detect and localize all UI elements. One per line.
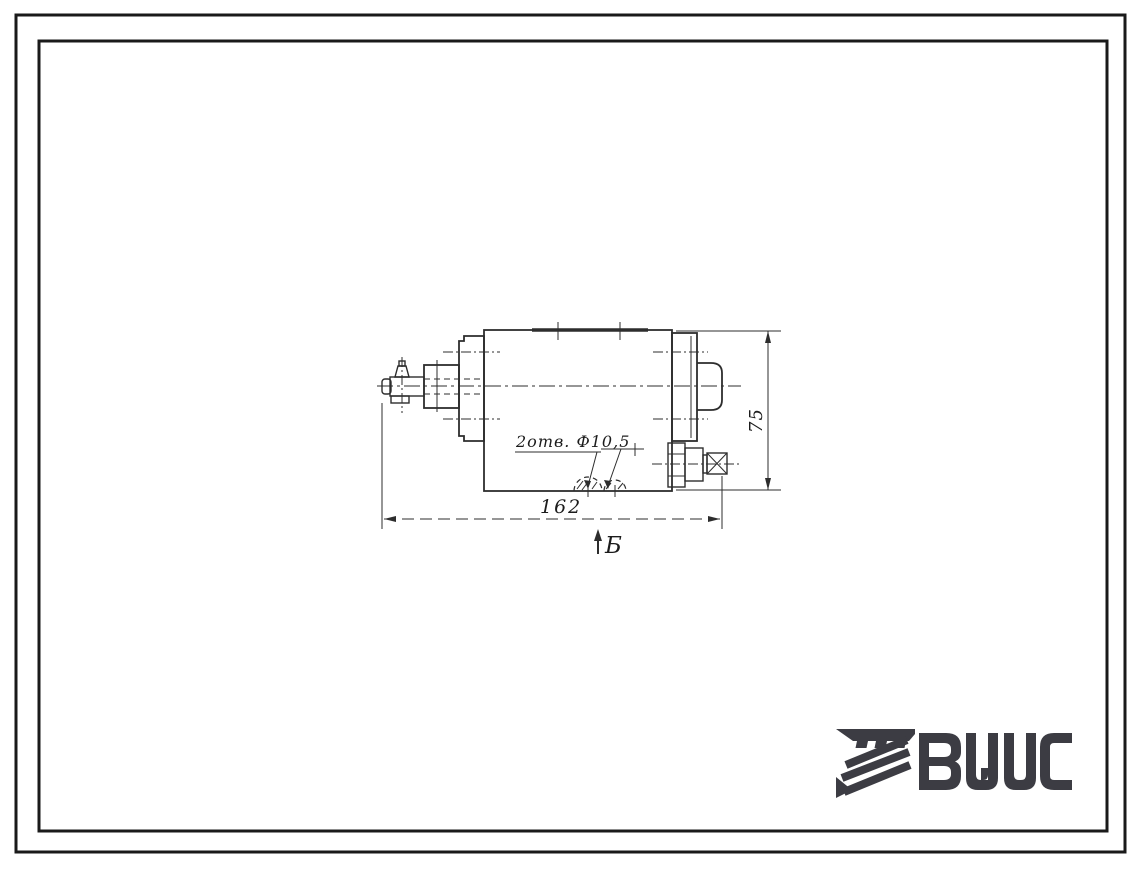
length-dim-text: 162: [540, 496, 582, 518]
logo-letter-3: [1004, 733, 1036, 790]
hatch-line: [577, 481, 583, 489]
vcis-logo-mark: [836, 729, 915, 798]
leader-arrow-1: [584, 480, 591, 489]
logo-letter-2: [966, 733, 998, 790]
hatch-line: [618, 483, 623, 489]
logo-letter-4: [1040, 733, 1072, 790]
section-letter-text: Б: [604, 533, 622, 559]
fitting-bottom-step: [391, 396, 409, 403]
section-marker: [594, 529, 602, 554]
dim-arrow-bottom: [765, 478, 771, 490]
annotation-texts: 2отв. Ф10,5 162 75 Б: [515, 408, 767, 559]
holes-note-text: 2отв. Ф10,5: [515, 432, 630, 451]
bottom-holes: [574, 477, 626, 497]
dim-arrow-top: [765, 331, 771, 343]
drawing-sheet: 2отв. Ф10,5 162 75 Б ВЦИС: [0, 0, 1139, 869]
port-hex: [668, 443, 685, 487]
section-arrow-head: [594, 529, 602, 541]
logo-letter-1: [919, 733, 961, 790]
body-outline: [484, 330, 672, 491]
height-dim-text: 75: [746, 408, 767, 433]
sheet-canvas: 2отв. Ф10,5 162 75 Б ВЦИС: [0, 0, 1139, 869]
dim-arrow-left: [384, 516, 396, 522]
right-flange: [672, 333, 697, 441]
dim-arrow-right: [708, 516, 720, 522]
vcis-logo: ВЦИС: [836, 729, 1072, 798]
mark-tooth-1: [856, 741, 869, 748]
hatch-line: [592, 482, 597, 489]
mark-stripe-3: [844, 765, 910, 792]
vcis-logo-letters: [919, 733, 1072, 790]
